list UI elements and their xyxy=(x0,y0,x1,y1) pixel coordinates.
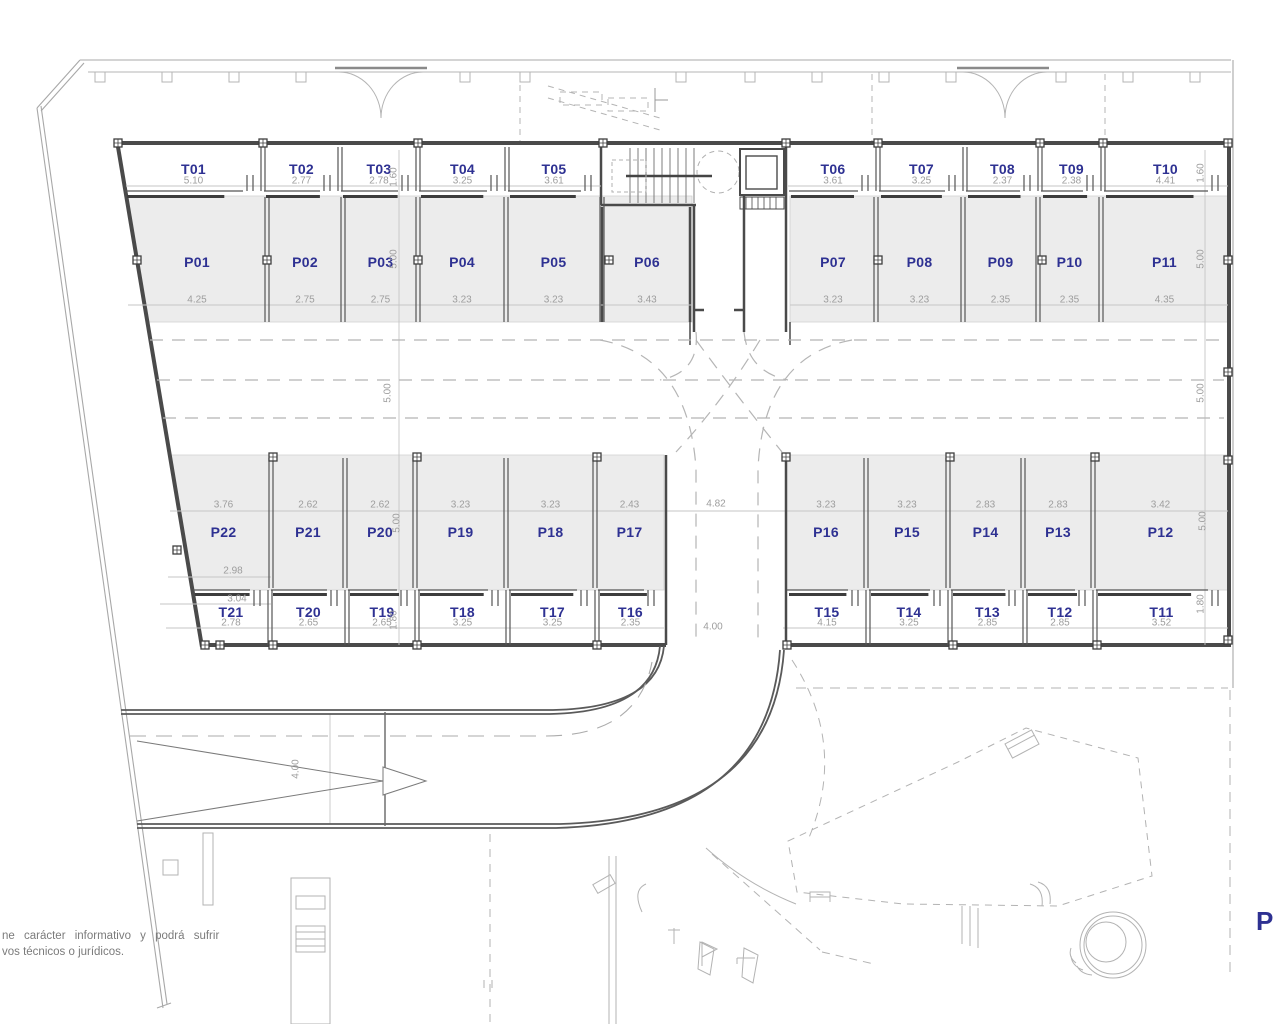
turning-circle xyxy=(697,151,739,193)
upper-floor-outline xyxy=(88,68,1231,141)
disclaimer-line-2: vos técnicos o jurídicos. xyxy=(2,946,124,958)
playground-boundary xyxy=(788,728,1152,906)
tree-icon xyxy=(1070,912,1146,978)
stall-fills xyxy=(127,196,1228,590)
access-road xyxy=(121,646,784,828)
door-arcs-icon xyxy=(335,68,1049,118)
elevator-icon xyxy=(740,149,784,209)
wall-stubs xyxy=(95,72,1200,82)
ramp-arrow-icon xyxy=(137,741,426,821)
plan-linework xyxy=(0,0,1280,1024)
bench-icon xyxy=(1005,730,1039,758)
road-walls xyxy=(666,455,786,645)
plan-corner-label: P xyxy=(1256,906,1273,937)
disclaimer-line-1: ne carácter informativo y podrá sufrir xyxy=(2,930,219,942)
bench2-icon xyxy=(810,892,830,902)
floor-plan: T015.10T022.77T032.78T043.25T053.61T063.… xyxy=(0,0,1280,1024)
